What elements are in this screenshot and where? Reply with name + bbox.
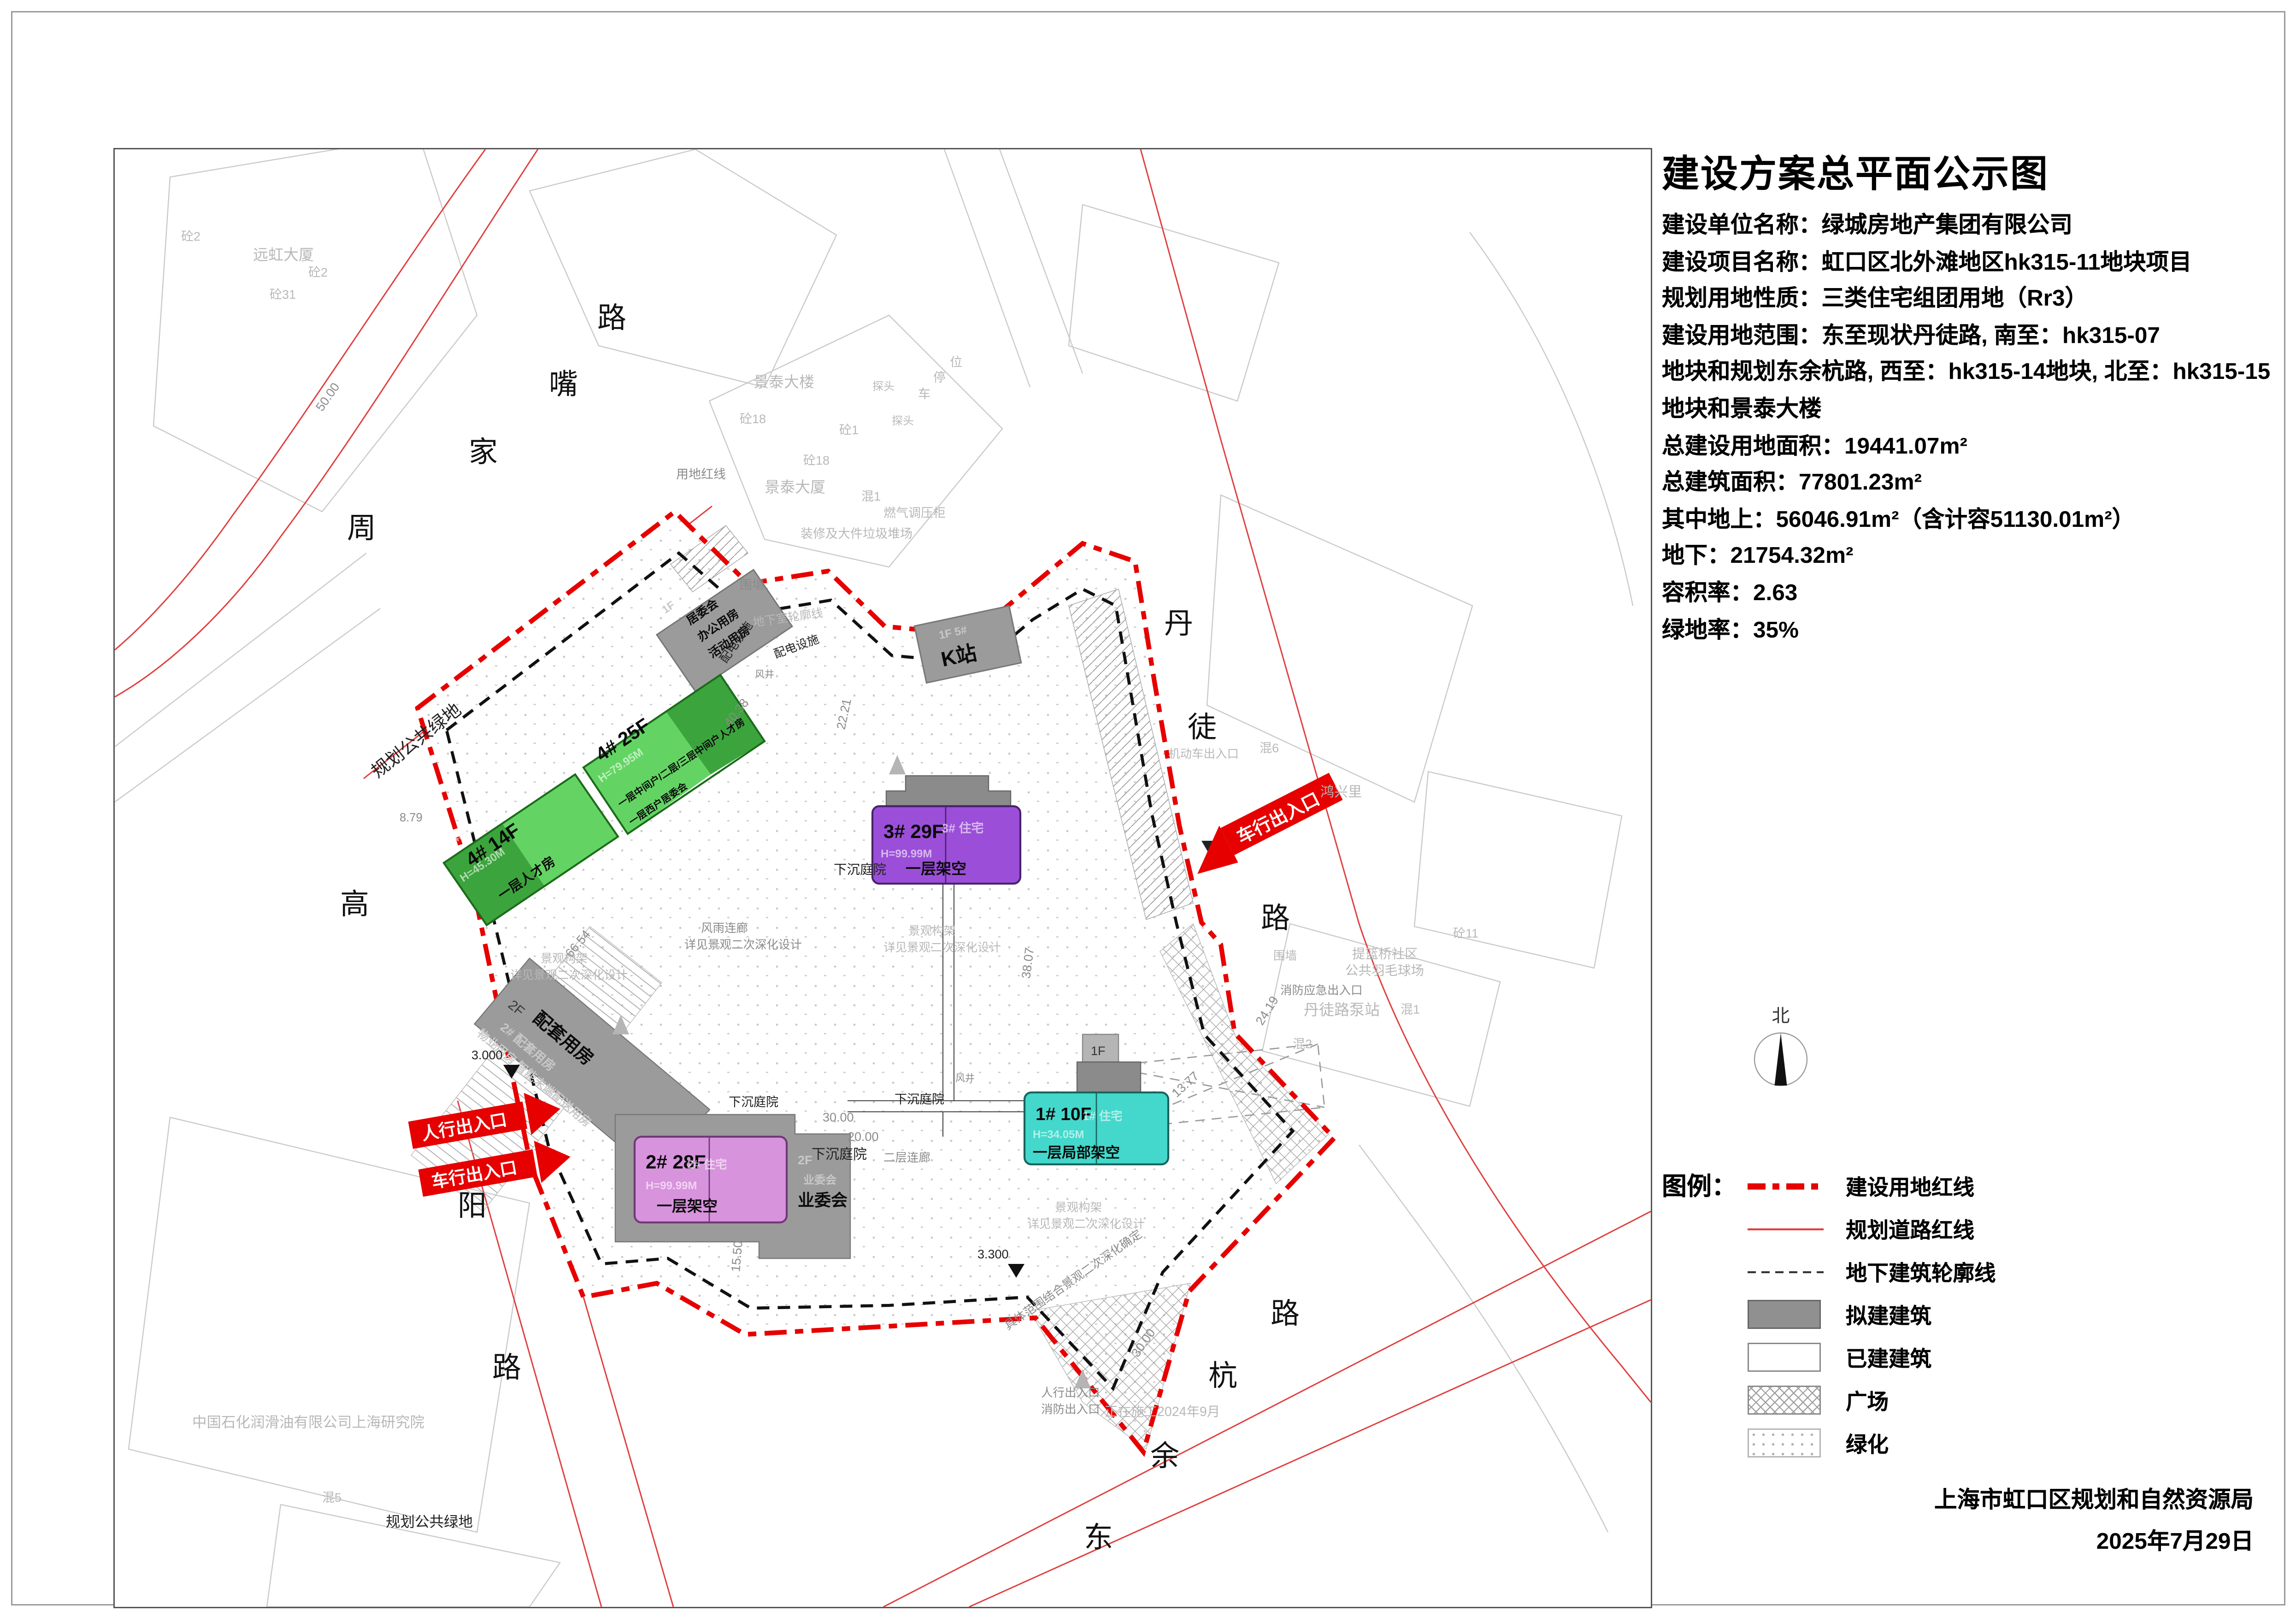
b2-ghost1: 2# 住宅 [687, 1158, 727, 1171]
map-annotation: 停 [933, 371, 946, 384]
map-annotation: 砼11 [1453, 927, 1478, 940]
map-annotation: 鸿兴里 [1320, 785, 1362, 800]
b1-ghost1: 1# 住宅 [1083, 1109, 1122, 1123]
legend-label: 规划道路红线 [1846, 1214, 1974, 1244]
site-plan-svg: 1F 居委会 办公用房 活动用房 1F 5# K站 4# 住宅 H=45. [115, 149, 1651, 1607]
road-dantu-char: 路 [1261, 902, 1290, 934]
map-annotation: 二层连廊 [883, 1151, 930, 1164]
map-annotation: 机动车出入口 [1168, 748, 1239, 761]
map-annotation: 混2 [1293, 1037, 1312, 1051]
road-dongyuhang-char: 东 [1084, 1522, 1113, 1554]
map-annotation: 下沉庭院 [812, 1147, 867, 1162]
road-dantu-char: 徒 [1188, 711, 1217, 744]
map-annotation: 混6 [1260, 741, 1279, 755]
road-dongyuhang-char: 杭 [1208, 1360, 1237, 1392]
map-annotation: 下沉庭院 [834, 862, 886, 877]
map-annotation: 人行出入口 [1041, 1387, 1100, 1399]
legend-red-dashed-line-swatch [1748, 1179, 1824, 1193]
map-annotation: 景泰大厦 [765, 478, 825, 496]
info-line: 其中地上：56046.91m²（含计容51130.01m²） [1662, 502, 2287, 538]
map-annotation: 燃气调压柜 [883, 506, 946, 520]
info-line: 地下：21754.32m² [1662, 538, 2287, 575]
smallf1-label: 1F [1091, 1044, 1106, 1058]
map-annotation: 20.00 [848, 1130, 879, 1144]
map-annotation: 详见景观二次深化设计 [684, 938, 802, 951]
road-zhoujiazui-char: 家 [469, 436, 498, 468]
legend-row: 地下建筑轮廓线 [1748, 1250, 1996, 1293]
map-annotation: 公共羽毛球场 [1345, 963, 1424, 978]
road-gaoyang-char: 路 [492, 1351, 521, 1384]
map-annotation: 景泰大楼 [754, 373, 814, 390]
b3-note: 一层架空 [906, 860, 966, 877]
info-line: 建设项目名称：虹口区北外滩地区hk315-11地块项目 [1662, 244, 2287, 281]
map-annotation: 装修及大件垃圾堆场 [801, 527, 913, 541]
building-2: 2# 28F H=99.99M 2# 住宅 一层架空 2F 业委会 业委会 [615, 1115, 850, 1258]
map-annotation: 消防出入口 [1041, 1403, 1100, 1416]
b2-note: 一层架空 [657, 1198, 718, 1215]
legend-red-solid-line-swatch [1748, 1222, 1824, 1236]
legend-row: 建设用地红线 [1748, 1164, 1996, 1207]
map-annotation: 远虹大厦 [253, 246, 314, 263]
b1-note: 一层局部架空 [1033, 1144, 1120, 1161]
attribution-agency: 上海市虹口区规划和自然资源局 [1701, 1480, 2254, 1521]
map-annotation: 砼31 [270, 288, 296, 301]
map-annotation: 正在施工2024年9月 [1105, 1405, 1220, 1419]
project-info: 建设单位名称：绿城房地产集团有限公司 建设项目名称：虹口区北外滩地区hk315-… [1662, 207, 2287, 649]
map-annotation: 车 [918, 387, 930, 401]
map-annotation: 中国石化润滑油有限公司上海研究院 [192, 1414, 424, 1430]
map-annotation: 景观构架 [908, 925, 955, 938]
b1-ghost2: H=34.05M [1033, 1128, 1084, 1141]
map-annotation: 50.00 [313, 380, 342, 414]
road-zhoujiazui-char: 周 [347, 512, 376, 544]
map-annotation: 混1 [861, 490, 881, 503]
map-annotation: 风井 [755, 669, 774, 680]
map-annotation: 景观构架 [1055, 1201, 1102, 1214]
legend-label: 绿化 [1846, 1428, 1889, 1458]
attribution-date: 2025年7月29日 [1701, 1521, 2254, 1563]
legend-label: 地下建筑轮廓线 [1846, 1257, 1996, 1287]
map-annotation: 探头 [872, 380, 895, 393]
legend-row: 规划道路红线 [1748, 1207, 1996, 1250]
info-line: 规划用地性质：三类住宅组团用地（Rr3） [1662, 281, 2287, 318]
info-line: 容积率：2.63 [1662, 575, 2287, 612]
map-annotation: 风井 [955, 1073, 975, 1084]
info-line: 建设单位名称：绿城房地产集团有限公司 [1662, 207, 2287, 244]
map-annotation: 混5 [322, 1491, 341, 1505]
map-annotation: 用地红线 [676, 467, 726, 481]
map-annotation: 规划公共绿地 [386, 1513, 473, 1530]
legend-label: 建设用地红线 [1846, 1171, 1974, 1201]
map-annotation: 丹徒路泵站 [1304, 1001, 1380, 1018]
legend-label: 拟建建筑 [1846, 1299, 1931, 1330]
road-gaoyang-char: 高 [340, 888, 369, 921]
owners-ghost: 业委会 [803, 1174, 836, 1186]
map-annotation: 下沉庭院 [895, 1092, 944, 1106]
info-line: 总建设用地面积：19441.07m² [1662, 428, 2287, 465]
road-zhoujiazui-char: 嘴 [549, 368, 578, 401]
map-annotation: 砼18 [803, 454, 830, 467]
compass-needle-icon [1775, 1033, 1787, 1086]
legend-row: 拟建建筑 [1748, 1293, 1996, 1336]
owners-floor: 2F [798, 1153, 812, 1167]
legend-greenery-swatch [1748, 1428, 1824, 1458]
info-line: 地块和景泰大楼 [1662, 391, 2287, 428]
legend-title: 图例： [1662, 1167, 1737, 1203]
road-dongyuhang-char: 余 [1150, 1440, 1179, 1472]
map-annotation: 24.19 [1253, 994, 1281, 1027]
legend-proposed-building-swatch [1748, 1300, 1824, 1329]
map-annotation: 消防应急出入口 [1280, 984, 1363, 997]
compass: 北 [1745, 1004, 1817, 1099]
map-annotation: 8.79 [400, 811, 423, 824]
map-annotation: 砼2 [181, 230, 200, 243]
map-annotation: 围墙 [740, 578, 765, 592]
legend-row: 已建建筑 [1748, 1336, 1996, 1379]
compass-north-label: 北 [1772, 1006, 1790, 1026]
attribution: 上海市虹口区规划和自然资源局 2025年7月29日 [1701, 1480, 2254, 1563]
map-annotation: 30.00 [823, 1110, 854, 1124]
page-title: 建设方案总平面公示图 [1662, 144, 2049, 198]
public-notice-sheet: 1F 居委会 办公用房 活动用房 1F 5# K站 4# 住宅 H=45. [0, 0, 2296, 1617]
legend-existing-building-swatch [1748, 1343, 1824, 1372]
map-annotation: 风雨连廊 [701, 922, 748, 935]
map-annotation: 15.50 [729, 1240, 745, 1273]
map-annotation: 砼18 [740, 412, 766, 426]
map-annotation: 详见景观二次深化设计 [510, 969, 628, 982]
info-line: 建设用地范围：东至现状丹徒路, 南至：hk315-07 [1662, 318, 2287, 354]
b3-ghost2: H=99.99M [881, 848, 932, 860]
legend-row: 绿化 [1748, 1422, 1996, 1464]
map-annotation: 混1 [1401, 1003, 1420, 1016]
map-annotation: 砼2 [308, 266, 328, 279]
building-3: 3# 住宅 H=99.99M 3# 29F 一层架空 [872, 776, 1020, 884]
map-annotation: 提篮桥社区 [1352, 947, 1418, 962]
owners-label: 业委会 [798, 1191, 848, 1210]
legend-row: 广场 [1748, 1379, 1996, 1422]
legend-label: 已建建筑 [1846, 1342, 1931, 1373]
map-annotation: 3.000 [471, 1048, 503, 1062]
legend-label: 广场 [1846, 1385, 1889, 1416]
map-annotation: 砼1 [839, 423, 859, 437]
road-dantu-char: 丹 [1164, 608, 1193, 640]
map-annotation: 详见景观二次深化设计 [883, 941, 1001, 954]
legend-plaza-swatch [1748, 1386, 1824, 1415]
b3-ghost1: 3# 住宅 [942, 821, 984, 835]
map-annotation: 3.300 [977, 1247, 1009, 1261]
map-annotation: 围墙 [1273, 950, 1297, 962]
info-line: 绿地率：35% [1662, 612, 2287, 649]
road-zhoujiazui-char: 路 [597, 302, 626, 334]
legend-black-dashed-line-swatch [1748, 1265, 1824, 1279]
road-gaoyang-char: 阳 [458, 1190, 487, 1222]
b3-label: 3# 29F [883, 820, 944, 842]
road-dongyuhang-char: 路 [1271, 1298, 1300, 1330]
map-annotation: 景观构架 [541, 952, 588, 965]
site-plan-map: 1F 居委会 办公用房 活动用房 1F 5# K站 4# 住宅 H=45. [113, 148, 1652, 1608]
b2-ghost2: H=99.99M [646, 1180, 697, 1192]
info-line: 地块和规划东余杭路, 西至：hk315-14地块, 北至：hk315-15 [1662, 354, 2287, 391]
map-annotation: 下沉庭院 [729, 1095, 778, 1109]
map-annotation: 探头 [892, 415, 914, 427]
map-annotation: 详见景观二次深化设计 [1027, 1218, 1145, 1231]
info-line: 总建筑面积：77801.23m² [1662, 465, 2287, 502]
legend: 图例： 建设用地红线 规划道路红线 地下建筑轮廓线 [1662, 1164, 1996, 1464]
map-annotation: 位 [950, 355, 962, 369]
